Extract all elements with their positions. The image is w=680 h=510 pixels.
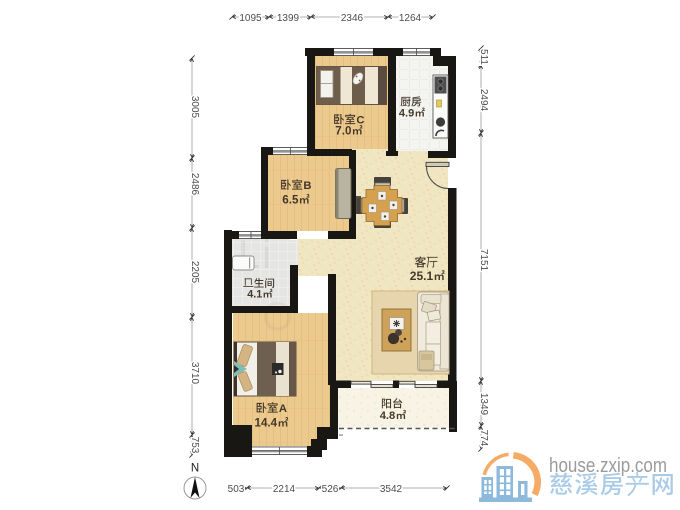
svg-text:4.9: 4.9 bbox=[399, 108, 414, 120]
svg-text:14.4: 14.4 bbox=[255, 417, 278, 430]
svg-text:4.8: 4.8 bbox=[380, 410, 396, 422]
svg-text:503: 503 bbox=[228, 484, 245, 495]
svg-text:3542: 3542 bbox=[380, 484, 403, 495]
svg-text:2486: 2486 bbox=[189, 173, 200, 196]
svg-text:B: B bbox=[303, 180, 311, 192]
svg-text:2494: 2494 bbox=[478, 89, 489, 112]
svg-text:774: 774 bbox=[478, 430, 489, 447]
svg-text:6.5: 6.5 bbox=[282, 194, 299, 207]
svg-text:511: 511 bbox=[478, 49, 489, 65]
svg-text:526: 526 bbox=[322, 484, 339, 495]
svg-text:2214: 2214 bbox=[273, 484, 296, 495]
svg-text:1349: 1349 bbox=[478, 393, 489, 416]
svg-text:1095: 1095 bbox=[239, 13, 262, 24]
svg-text:N: N bbox=[191, 463, 199, 475]
svg-text:3710: 3710 bbox=[189, 362, 200, 385]
svg-text:7151: 7151 bbox=[478, 249, 489, 272]
svg-text:4.1: 4.1 bbox=[247, 289, 262, 301]
svg-text:7.0: 7.0 bbox=[335, 125, 351, 138]
svg-text:2346: 2346 bbox=[341, 13, 364, 24]
svg-text:A: A bbox=[279, 403, 287, 415]
svg-text:25.1: 25.1 bbox=[410, 269, 434, 283]
svg-text:2205: 2205 bbox=[189, 261, 200, 284]
svg-text:753: 753 bbox=[189, 437, 200, 454]
svg-text:3005: 3005 bbox=[189, 96, 200, 119]
svg-text:1264: 1264 bbox=[399, 13, 422, 24]
svg-text:C: C bbox=[356, 115, 364, 127]
svg-text:1399: 1399 bbox=[277, 13, 300, 24]
